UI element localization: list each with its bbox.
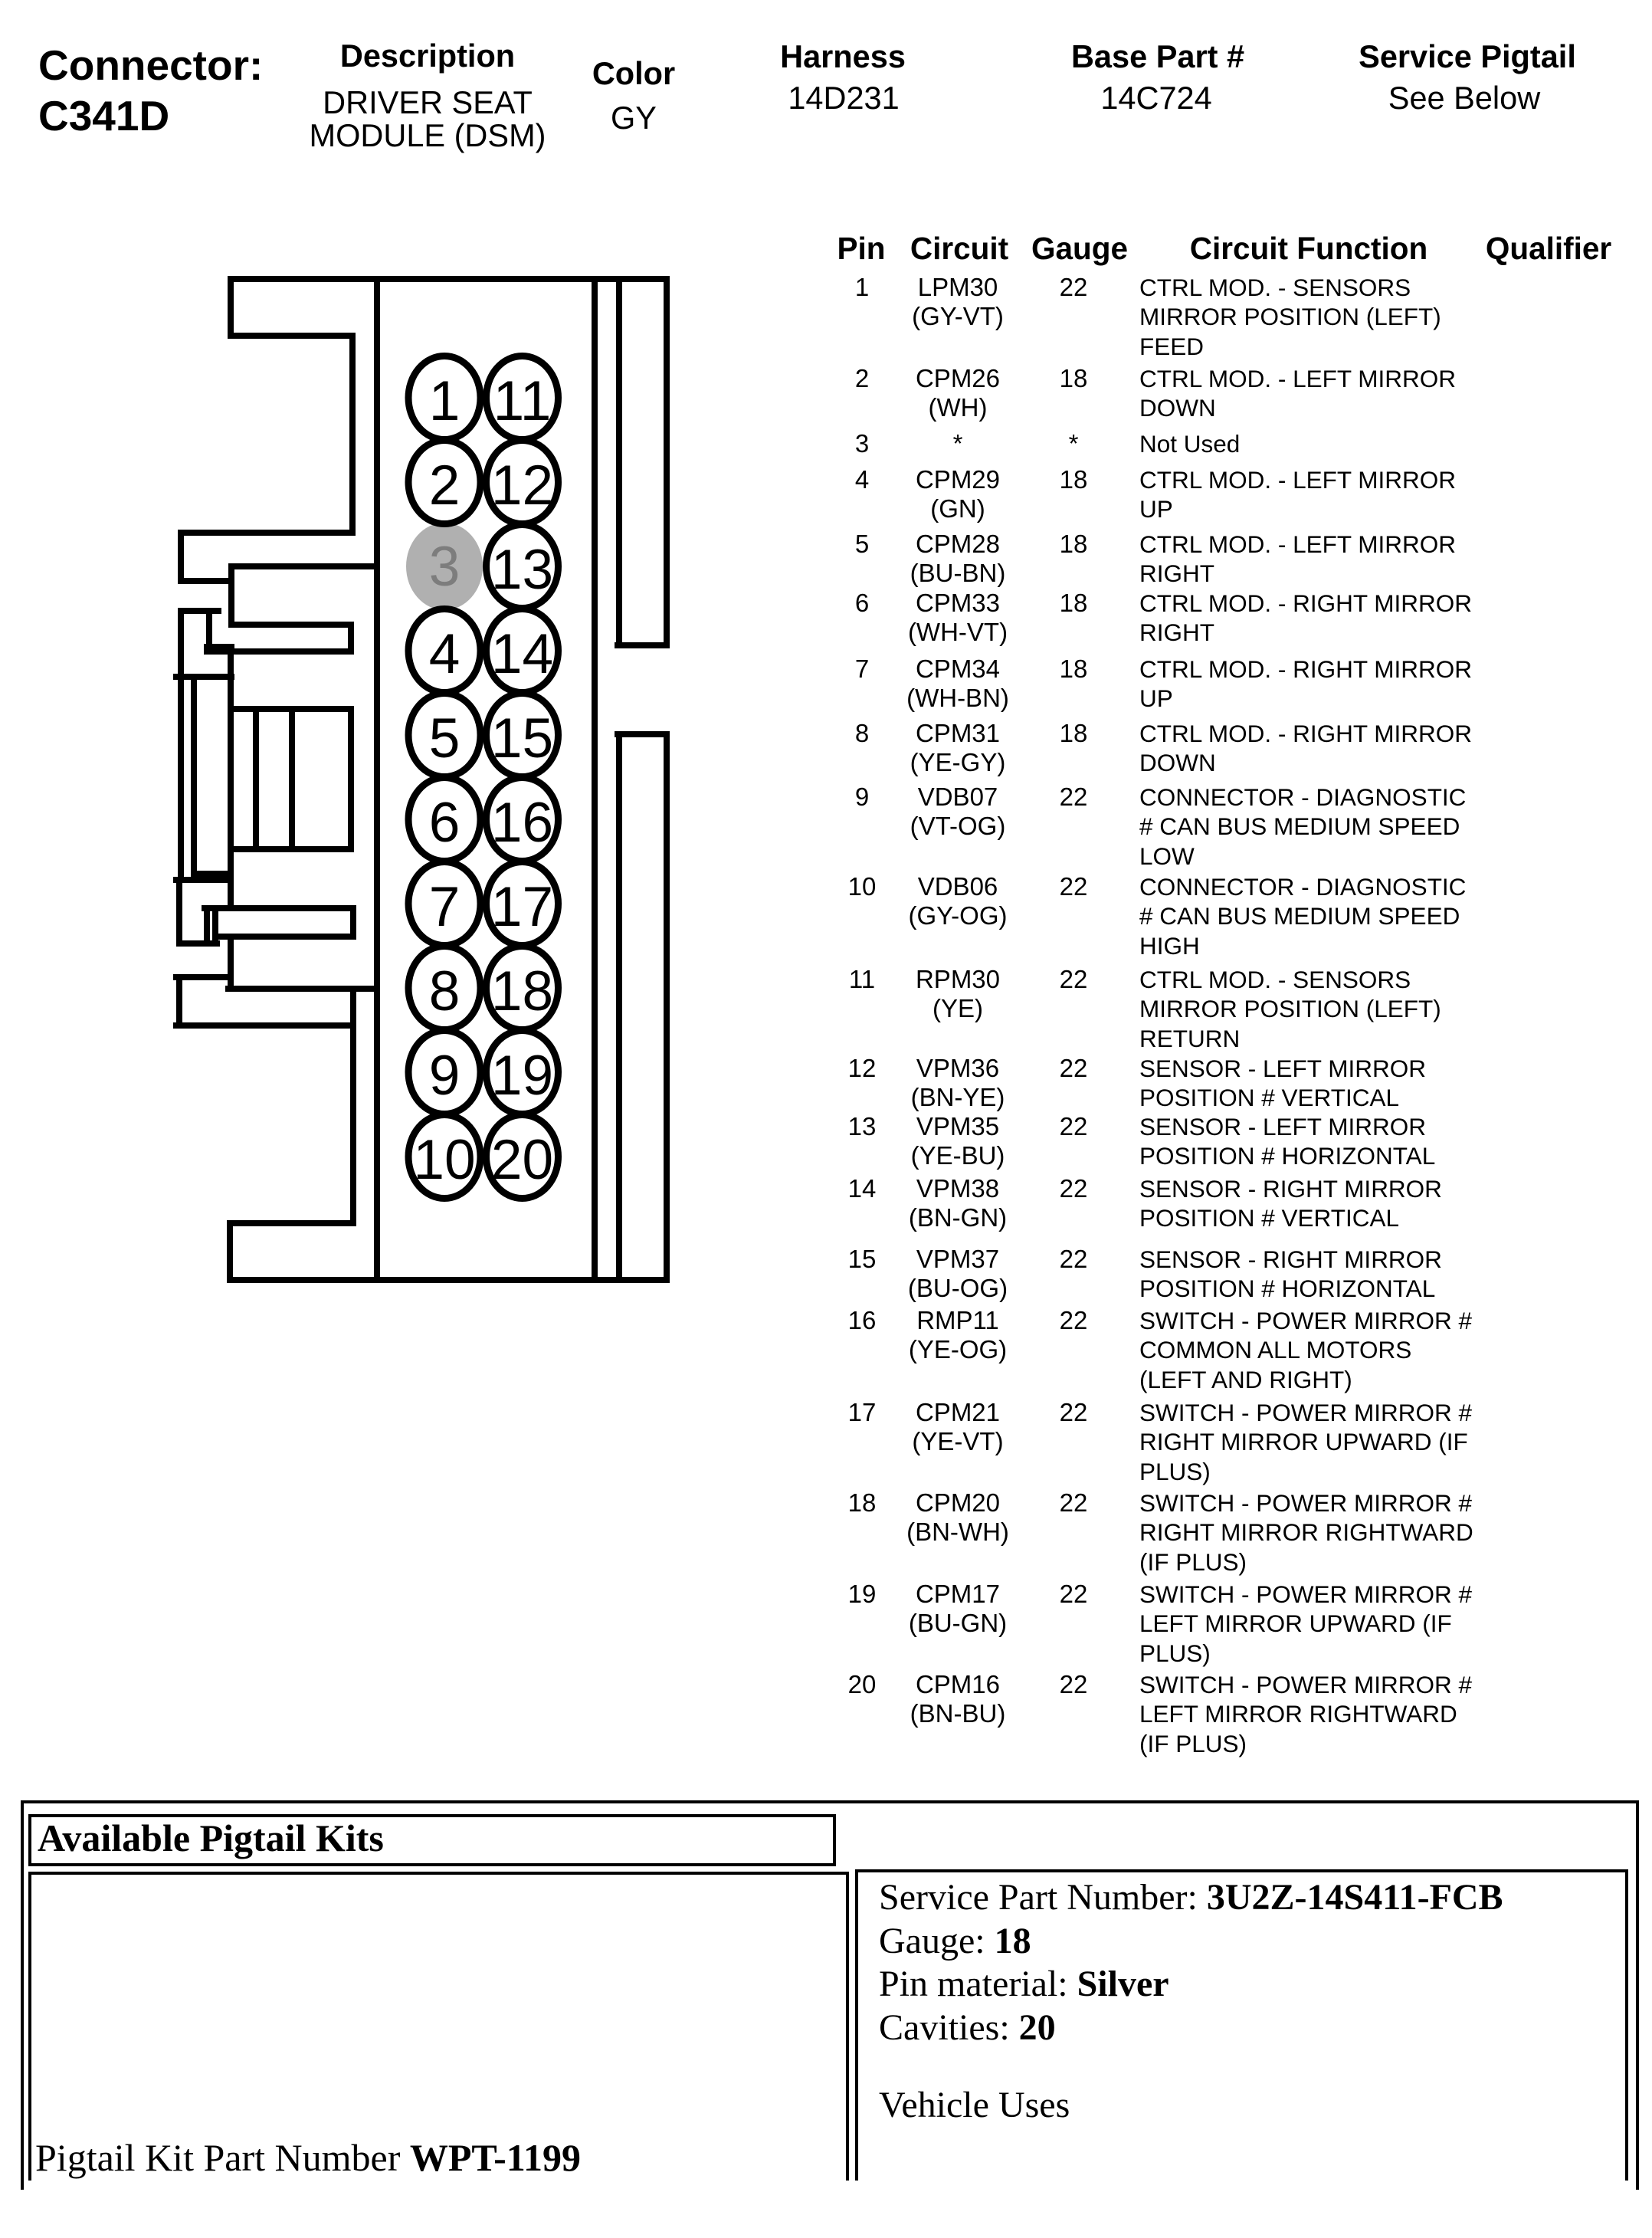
svg-text:3: 3: [429, 536, 461, 598]
svg-text:15: 15: [491, 707, 553, 770]
svg-text:20: 20: [491, 1129, 553, 1191]
svg-text:2: 2: [429, 454, 461, 517]
svg-text:16: 16: [491, 792, 553, 854]
svg-text:5: 5: [429, 707, 461, 770]
svg-text:18: 18: [491, 960, 553, 1022]
svg-text:8: 8: [429, 960, 461, 1022]
svg-text:11: 11: [493, 370, 552, 432]
svg-text:19: 19: [491, 1045, 553, 1107]
svg-text:14: 14: [491, 623, 553, 685]
svg-text:9: 9: [429, 1045, 461, 1107]
svg-text:10: 10: [413, 1129, 475, 1191]
svg-text:1: 1: [429, 370, 461, 432]
svg-text:17: 17: [491, 876, 553, 938]
svg-text:12: 12: [491, 454, 553, 517]
svg-text:13: 13: [491, 539, 553, 601]
svg-text:7: 7: [429, 876, 461, 938]
svg-text:6: 6: [429, 792, 461, 854]
svg-text:4: 4: [429, 623, 461, 685]
